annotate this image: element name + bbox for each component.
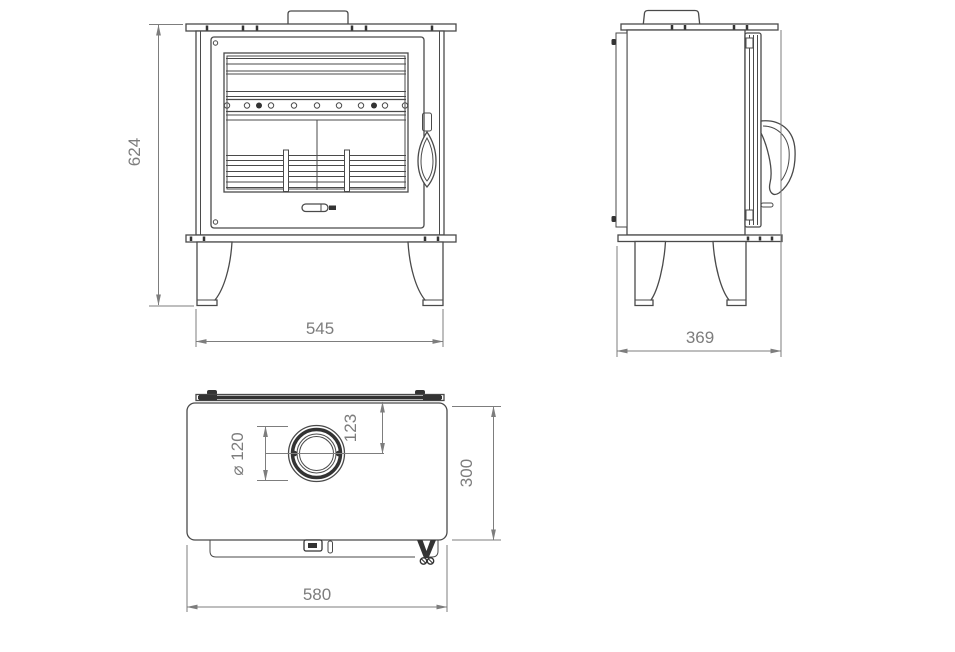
hinge-bottom-side	[746, 210, 753, 220]
back-bolt-bottom	[612, 216, 617, 222]
dimension-front-width: 545	[196, 309, 443, 347]
side-view: 369	[612, 11, 796, 358]
back-bolt-top	[612, 39, 617, 45]
stove-technical-drawing: 624 545	[0, 0, 955, 652]
hinge-top-side	[746, 38, 753, 48]
side-depth-label: 369	[686, 328, 714, 347]
top-width-label: 580	[303, 585, 331, 604]
air-lever-stop	[329, 206, 336, 211]
flue-offset-label: 123	[341, 414, 360, 442]
leg-front-left	[197, 242, 232, 306]
front-height-label: 624	[125, 138, 144, 166]
top-depth-label: 300	[457, 459, 476, 487]
bottom-plate-front	[186, 235, 456, 242]
handle-plan	[417, 540, 436, 564]
front-width-label: 545	[306, 319, 334, 338]
front-view: 624 545	[125, 11, 456, 347]
dimension-top-depth: 300	[452, 407, 501, 541]
stove-body-side	[627, 30, 745, 235]
leg-side-front	[713, 242, 746, 306]
bottom-plate-side	[618, 235, 782, 242]
leg-side-back	[635, 242, 666, 306]
top-plate-front	[186, 24, 456, 31]
top-plate-plan	[187, 403, 447, 540]
back-bar-top	[196, 390, 444, 401]
door-edge-side	[745, 33, 761, 227]
top-plate-side	[621, 24, 778, 30]
leg-front-right	[408, 242, 443, 306]
dimension-front-height: 624	[125, 25, 194, 307]
latch-pin-side	[761, 203, 773, 207]
door-handle-side	[761, 121, 795, 195]
latch-pin-plan	[328, 541, 333, 553]
door-front-edge-plan	[210, 540, 438, 564]
back-panel	[616, 33, 627, 227]
retainer-post-left	[284, 150, 289, 192]
retainer-post-right	[345, 150, 350, 192]
top-view: ⌀ 120 123 300	[187, 390, 501, 612]
dimension-top-width: 580	[187, 545, 447, 612]
drawing-page: 624 545	[0, 0, 955, 652]
flue-diameter-label: ⌀ 120	[228, 432, 247, 475]
